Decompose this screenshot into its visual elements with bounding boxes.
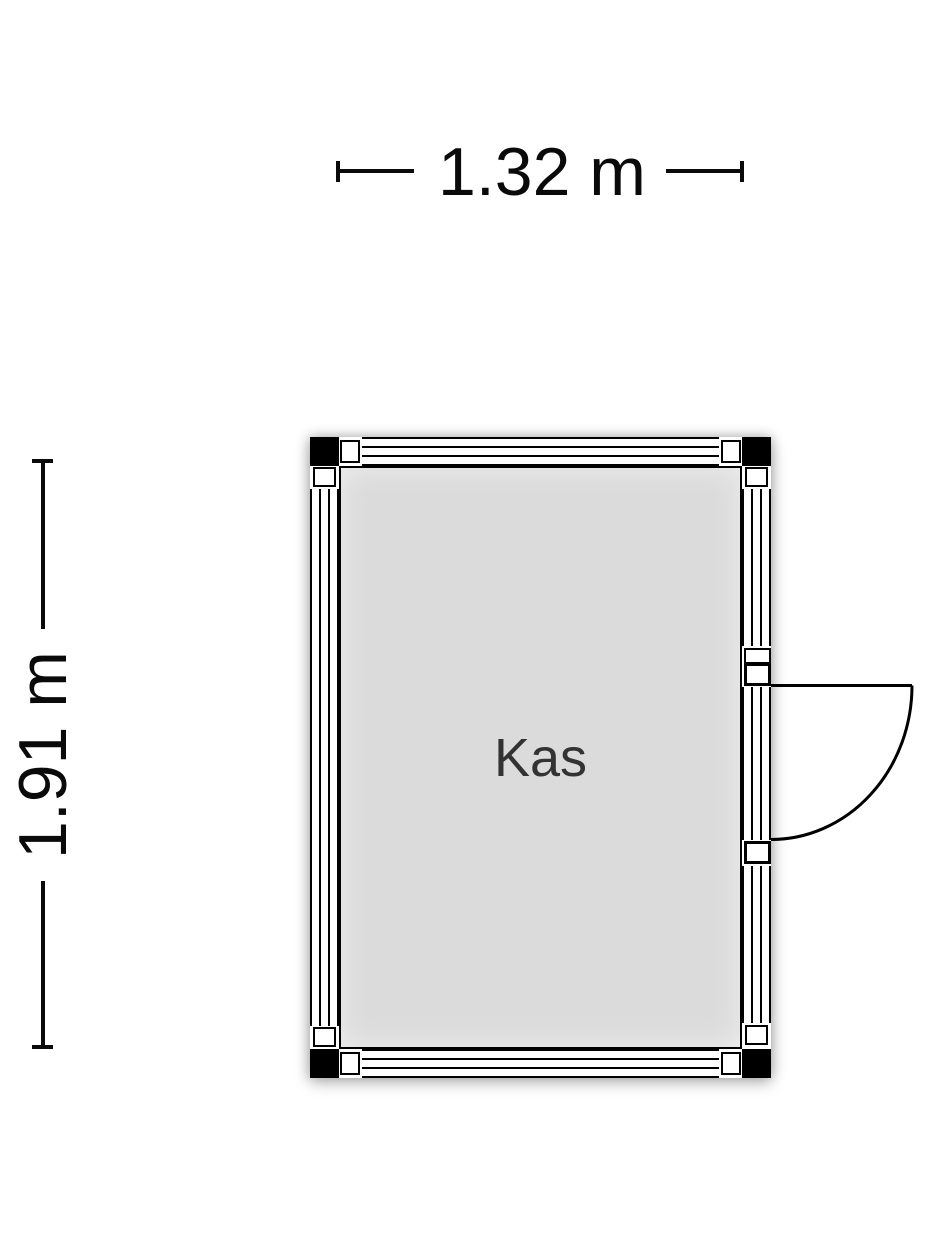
dimension-width-label: 1.32 m — [415, 137, 669, 207]
door-jamb-top — [744, 663, 771, 686]
dimension-width-tick-right — [740, 161, 744, 182]
wall-cap-bottom-left — [340, 1052, 360, 1075]
dimension-height-tick-bottom — [32, 1045, 53, 1049]
wall-bottom — [362, 1049, 719, 1078]
dimension-height-line-bottom — [41, 881, 45, 1047]
room-kas: Kas — [339, 466, 742, 1049]
corner-post-top-left — [310, 437, 339, 466]
wall-cap-left-lower — [313, 1027, 336, 1047]
wall-cap-top-right — [721, 440, 741, 463]
dimension-width-line-left — [338, 169, 414, 173]
room-label: Kas — [494, 731, 587, 785]
floor-plan-canvas: 1.32 m 1.91 m Kas — [0, 0, 930, 1240]
wall-right-upper — [742, 489, 771, 646]
dimension-height-line-top — [41, 462, 45, 629]
door-swing-arc — [771, 686, 912, 840]
greenhouse-structure: Kas — [310, 437, 771, 1078]
wall-cap-left-upper — [313, 467, 336, 487]
wall-cap-top-left — [340, 440, 360, 463]
corner-post-top-right — [742, 437, 771, 466]
door-jamb-bottom — [744, 841, 771, 864]
dimension-width-line-right — [666, 169, 742, 173]
wall-right-door-section — [742, 687, 771, 840]
wall-left — [310, 489, 339, 1026]
wall-cap-bottom-right — [721, 1052, 741, 1075]
wall-cap-right-upper — [745, 467, 768, 487]
wall-top — [362, 437, 719, 466]
corner-post-bottom-right — [742, 1049, 771, 1078]
wall-cap-right-lower — [745, 1025, 768, 1045]
wall-right-lower — [742, 866, 771, 1023]
corner-post-bottom-left — [310, 1049, 339, 1078]
door-jamb-top-small — [744, 648, 771, 664]
dimension-height-label: 1.91 m — [8, 630, 78, 880]
